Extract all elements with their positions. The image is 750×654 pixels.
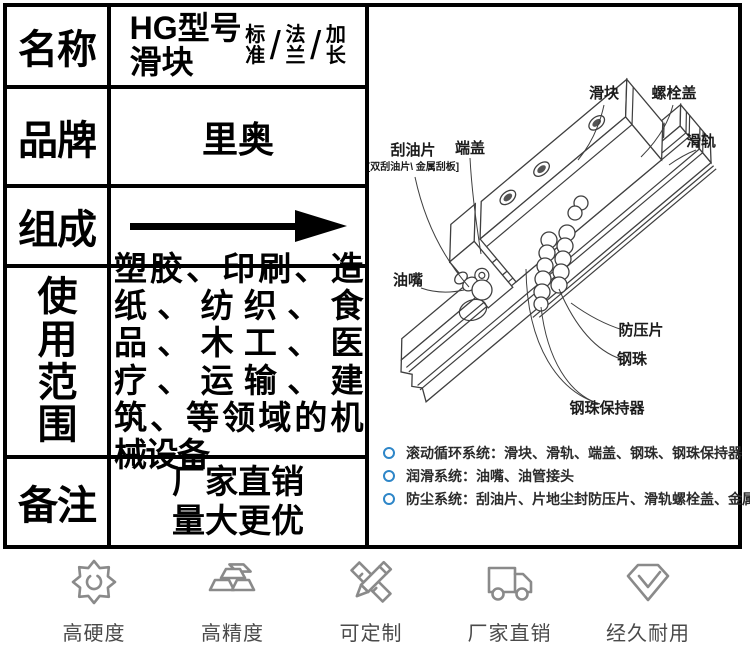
remark-line2: 量大更优 <box>172 502 304 541</box>
feature-label: 高硬度 <box>63 617 126 646</box>
row-usage-label: 使用范围 <box>7 268 111 459</box>
remark-line1: 厂家直销 <box>172 463 304 502</box>
row-name-label: 名称 <box>7 7 111 89</box>
list-item: 防尘系统：刮油片、片地尘封防压片、滑轨螺栓盖、金属刮板 <box>383 489 750 509</box>
technical-diagram: 滑块 螺栓盖 滑轨 刮油片 [双刮油片\ 金属刮板] 端盖 油嘴 防压片 钢珠 … <box>369 7 738 545</box>
list-item: 润滑系统：油嘴、油管接头 <box>383 466 750 486</box>
variant-flange: 法兰 <box>285 25 306 67</box>
feature-precision: 高精度 <box>187 556 279 646</box>
callout-bolt-cover: 螺栓盖 <box>651 84 696 102</box>
callout-anti-press-plate: 防压片 <box>618 321 663 339</box>
feature-hardness: 高硬度 <box>48 556 140 646</box>
callout-rail: 滑轨 <box>686 132 716 150</box>
callout-oil-scraper: 刮油片 <box>390 141 435 159</box>
feature-label: 可定制 <box>340 617 403 646</box>
bullet-circle-icon <box>383 470 395 482</box>
row-remark-label: 备注 <box>7 459 111 545</box>
list-item: 滚动循环系统：滑块、滑轨、端盖、钢珠、钢珠保持器 <box>383 443 750 463</box>
row-composition-label: 组成 <box>7 188 111 268</box>
bullet-text: 防尘系统：刮油片、片地尘封防压片、滑轨螺栓盖、金属刮板 <box>406 489 750 509</box>
callout-slider: 滑块 <box>589 85 620 102</box>
row-brand-value: 里奥 <box>111 89 369 188</box>
feature-label: 厂家直销 <box>468 617 552 646</box>
arrow-head <box>295 210 347 242</box>
spec-table: 名称 HG型号 滑块 标准 / 法兰 / 加长 品牌 里奥 组成 使用范围 塑胶… <box>3 3 742 549</box>
gear-icon <box>68 556 120 608</box>
usage-label-text: 使用范围 <box>36 276 78 447</box>
composition-arrow <box>111 210 365 242</box>
feature-factory-direct: 厂家直销 <box>464 556 556 646</box>
callout-oil-nipple: 油嘴 <box>393 271 423 289</box>
bullet-circle-icon <box>383 493 395 505</box>
feature-customizable: 可定制 <box>325 556 417 646</box>
slash-separator: / <box>270 24 281 69</box>
row-remark-value: 厂家直销 量大更优 <box>111 459 369 545</box>
bullet-text: 润滑系统：油嘴、油管接头 <box>406 466 574 486</box>
row-brand-label: 品牌 <box>7 89 111 188</box>
feature-durable: 经久耐用 <box>602 556 694 646</box>
feature-label: 经久耐用 <box>606 617 690 646</box>
feature-strip: 高硬度 高精度 可定制 <box>0 556 750 646</box>
ingots-icon <box>207 556 259 608</box>
callout-steel-ball: 钢珠 <box>617 350 648 368</box>
slash-separator: / <box>310 24 321 69</box>
pencil-ruler-icon <box>345 556 397 608</box>
bullet-text: 滚动循环系统：滑块、滑轨、端盖、钢珠、钢珠保持器 <box>406 443 742 463</box>
bullet-circle-icon <box>383 447 395 459</box>
row-usage-value: 塑胶、印刷、造纸、纺织、食品、木工、医疗、运输、建筑、等领域的机械设备 <box>111 268 369 459</box>
callout-ball-retainer: 钢珠保持器 <box>569 399 645 417</box>
arrow-shaft <box>130 223 295 230</box>
callout-end-cap: 端盖 <box>455 139 485 157</box>
diamond-check-icon <box>622 556 674 608</box>
model-text: HG型号 滑块 <box>130 12 242 80</box>
variant-extended: 加长 <box>325 25 346 67</box>
row-name-value: HG型号 滑块 标准 / 法兰 / 加长 <box>111 7 369 89</box>
variant-standard: 标准 <box>245 25 266 67</box>
truck-icon <box>484 556 536 608</box>
callout-oil-scraper-note: [双刮油片\ 金属刮板] <box>369 160 459 173</box>
system-bullet-list: 滚动循环系统：滑块、滑轨、端盖、钢珠、钢珠保持器 润滑系统：油嘴、油管接头 防尘… <box>383 443 750 509</box>
feature-label: 高精度 <box>201 617 264 646</box>
